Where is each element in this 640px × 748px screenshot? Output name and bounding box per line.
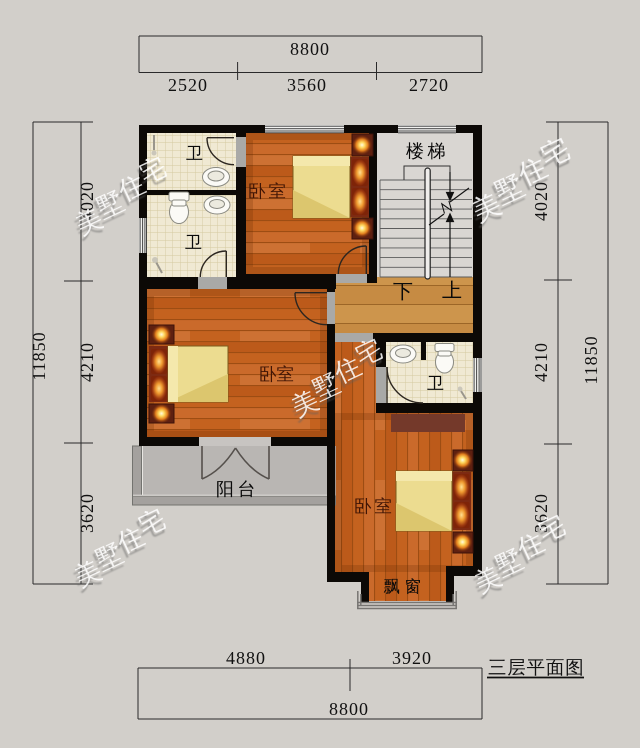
svg-text:4020: 4020: [531, 181, 551, 221]
svg-text:3560: 3560: [287, 75, 327, 95]
svg-text:3620: 3620: [77, 493, 97, 533]
svg-text:4210: 4210: [531, 342, 551, 382]
svg-text:2720: 2720: [409, 75, 449, 95]
svg-text:11850: 11850: [29, 331, 49, 380]
svg-text:4210: 4210: [77, 342, 97, 382]
svg-text:8800: 8800: [329, 699, 369, 719]
svg-text:4880: 4880: [226, 648, 266, 668]
svg-text:8800: 8800: [290, 39, 330, 59]
svg-text:11850: 11850: [581, 335, 601, 384]
svg-text:2520: 2520: [168, 75, 208, 95]
svg-text:3920: 3920: [392, 648, 432, 668]
